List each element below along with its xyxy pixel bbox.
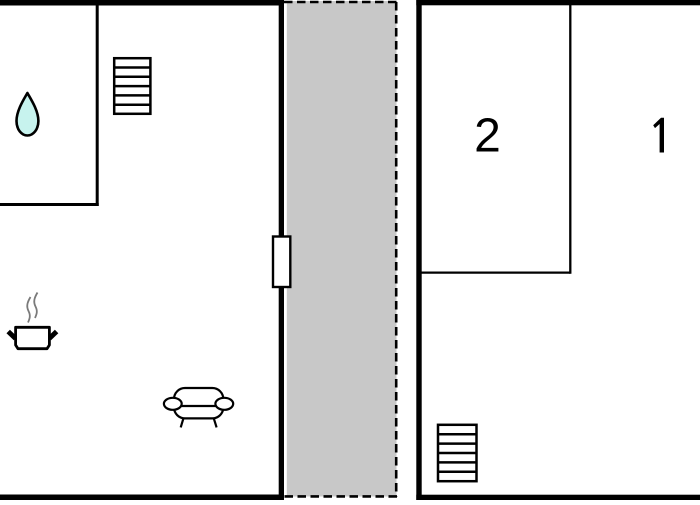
svg-text:2: 2	[474, 110, 501, 163]
